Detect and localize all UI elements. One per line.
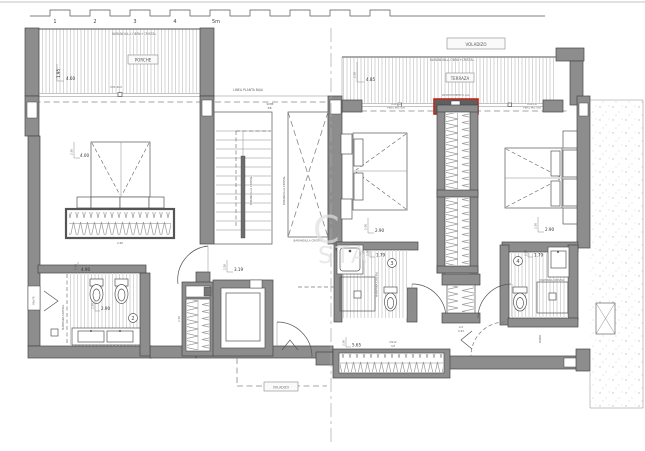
scale-label-5m: 5m [212,19,220,25]
bath4-door-label: BAÑO [537,335,542,343]
facade-note: LINEA PLANTA BAJA [233,88,264,92]
porch: BARANDILLA OBRA+CRISTAL PORCHE 1.95 4.60… [25,28,214,97]
window [27,102,37,118]
scale-label-1: 1 [53,19,56,25]
bath3-width-dim: 1.79 [376,253,386,258]
bath4-height-dim: 2.50 [524,250,528,256]
stair-rail-label-b: BARANDILLA CRISTAL [282,176,286,205]
porch-opening-size: 295x400 [110,85,122,89]
long-wardrobe-type: 3-P [391,344,396,348]
porch-column-left [25,28,39,96]
long-wardrobe: 2.50 5.65 OS12 3-P [333,337,450,378]
hall-wardrobe-dim: 2.20 [177,316,181,322]
bath2-height-dim: 2.50 [74,264,78,270]
bedroom3-dimension: 2.50 2.90 [534,217,555,232]
bedroom3-bed [505,131,577,224]
watermark: C STA [313,208,370,269]
cladding-label: REVESTIMIENTO ALU [442,93,470,97]
bath4-number-badge: 4 [514,257,523,266]
bath4-bottom-wall [508,318,578,327]
bath4-screen-label: MAMPARA CRISTAL [539,278,565,282]
long-wardrobe-dim: 5.65 [352,343,362,348]
terrace-width-dim: 4.85 [366,77,376,82]
scale-bar: 1 2 3 4 5m [30,10,545,25]
bath2-shower: MAMPARA CRISTAL [44,274,67,345]
bathroom2: 2.50 4.90 MAMPARA CRISTAL 90x70 2.50 2.9… [28,262,140,346]
bedroom3-height-dim: 2.50 [534,223,538,229]
toilet [115,279,128,304]
bath2-inner-height: 2.50 [91,303,95,309]
hall-wardrobe: 2.20 [177,282,214,356]
bottom-wall-left [28,346,152,358]
cabinet [563,150,577,177]
window [579,103,588,116]
long-wardrobe-dimension: 2.50 5.65 [342,337,362,348]
terrace-height-dim: 2.50 [353,72,357,78]
shower-drain [549,293,556,300]
stair-rail-label-a: BARANDILLA CRISTAL [249,176,253,205]
scale-label-3: 3 [133,19,136,25]
bath2-vanity [72,328,140,345]
master-height-dim: 2.50 [70,149,74,155]
bath3-screen-label: MAMPARA CRISTAL [375,271,379,297]
facade-stub-left [342,100,362,112]
porch-depth-dim: 1.95 [56,68,61,78]
scale-label-2: 2 [93,19,96,25]
bidet [90,279,103,304]
porch-name-label: PORCHE [135,58,152,63]
bath2-right-wall [140,273,150,356]
slider-meeting-stile [118,93,122,97]
bedroom2-height-dim: 2.50 [364,224,368,230]
scale-label-4: 4 [173,19,176,25]
elevator-door [250,280,262,288]
bedroom3-width-dim: 2.90 [545,227,555,232]
pillow [354,173,363,200]
slider-meeting-stile [508,103,512,107]
bedroom3: 2.50 2.90 [505,131,577,232]
bath2-screen-label: MAMPARA CRISTAL [61,304,65,330]
nightstand [341,199,352,219]
bath4-width-dim: 1.79 [534,253,544,258]
closet-width: 0.93 [458,329,464,333]
nightstand [149,197,164,208]
stair-up-label-2: P.B. [268,106,273,110]
pillow [551,151,560,176]
cabinet [563,179,577,206]
blind-right-label-2: PERS.MOTOR [523,106,541,110]
nightstand [563,131,577,148]
bath2-inner-dim: 2.90 [101,306,111,311]
facade-stub-right [543,100,563,112]
wardrobe-column-1 [445,112,470,190]
nightstand [77,197,91,208]
bath4-vanity [548,247,569,277]
pillow [354,139,363,166]
pillow [551,181,560,206]
voladizo-top-label: VOLADIZO [465,42,486,47]
window [202,100,212,116]
watermark-line2: STA [318,243,370,269]
bottom-wall-right [448,356,580,369]
terrace-railing-label: BARANDILLA OBRA+CRISTAL [430,58,475,62]
stair-wall-left [200,96,214,244]
terrace-corner-wall [556,48,584,61]
bath2-number: 2 [131,316,134,322]
porch-railing-label: BARANDILLA OBRA+CRISTAL [112,32,157,36]
bath2-top-dimension: 2.50 4.90 [74,262,91,272]
window [330,100,341,114]
wardrobe-column-2 [445,197,470,266]
master-dimension: 2.50 4.00 [70,142,90,158]
shower-drain [51,329,58,336]
floor-plan-sheet: 1 2 3 4 5m BARANDILLA OBRA+CRISTAL PORCH… [0,0,645,451]
bath3-number: 3 [390,261,393,267]
bedroom2: 2.50 2.90 [341,133,407,233]
master-width-dim: 4.00 [80,153,90,158]
floor-plan-drawing: 1 2 3 4 5m BARANDILLA OBRA+CRISTAL PORCH… [0,0,645,451]
wall-junction-block [316,352,333,365]
hall-height-dim: 2.50 [223,264,227,270]
terrace: VOLADIZO BARANDILLA OBRA+CRISTAL TERRAZA… [342,38,584,114]
bath3-number-badge: 3 [388,259,397,268]
stair-handrail [241,156,245,238]
corner-pilaster-right [576,349,590,371]
toilet [513,287,527,311]
left-exterior-wall [28,136,40,346]
bath4-number: 4 [516,259,519,265]
master-wardrobe-dim: 2.60 [117,241,123,245]
shower-drain [354,291,361,298]
porch-deck-hatch [39,29,200,93]
bedroom2-bed [341,133,407,219]
bath2-number-badge: 2 [129,314,138,323]
bath2-top-dim: 4.90 [81,267,91,272]
toilet [384,287,397,311]
hall-dimension: 2.50 3.19 [223,260,244,272]
porch-column-right [200,28,214,96]
voladizo-label: VOLADIZO [273,386,290,390]
bath2-window-size: 90x70 [32,296,36,305]
long-wardrobe-height: 2.50 [342,340,346,346]
bedroom2-dimension: 2.50 2.90 [364,218,385,233]
hall-width-dim: 3.19 [234,267,244,272]
master-bedroom: 2.60 2.50 4.00 [66,142,208,284]
pillow [91,197,120,208]
pillow [120,197,149,208]
blind-left-label-2: PERS.MOTOR [387,106,405,110]
exterior-gravel [590,100,643,408]
master-bed [77,142,164,208]
master-wardrobe: 2.60 [66,209,174,245]
skylight-marker [596,303,615,334]
staircase: SUBE P.B. BARANDILLA CRISTAL BARANDILLA … [214,102,328,244]
nightstand [341,134,352,154]
bedroom2-width-dim: 2.90 [375,228,385,233]
right-exterior-wall [577,96,590,248]
porch-width-dim: 4.60 [66,76,76,81]
bath4-right-wall [568,245,578,320]
elevator [213,280,273,356]
dressing-wardrobes [437,105,478,273]
voladizo-outline: VOLADIZO [237,358,327,391]
nightstand [563,208,577,224]
terrace-name-label: TERRAZA [450,76,470,81]
bath2-top-wall [38,265,146,273]
